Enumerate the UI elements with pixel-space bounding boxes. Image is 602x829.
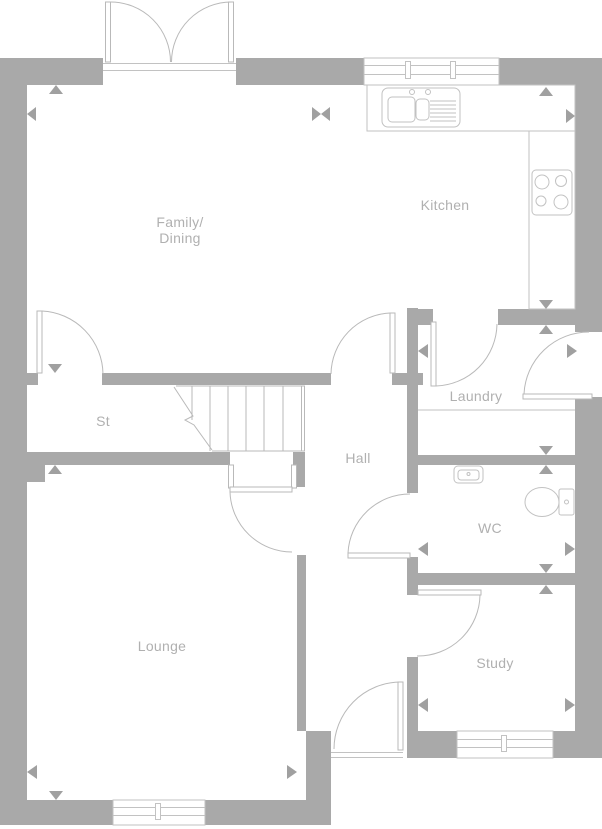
- wall-segment: [27, 452, 230, 465]
- wall-segment: [27, 373, 38, 385]
- wall-segment: [498, 309, 575, 325]
- junction-marker-icon: [418, 698, 428, 712]
- floorplan-linework: [0, 0, 602, 829]
- wall-segment: [407, 465, 418, 493]
- study-door-icon: [417, 590, 481, 656]
- room-label-wc: WC: [478, 520, 502, 536]
- wall-segment: [553, 731, 575, 758]
- junction-marker-icon: [321, 107, 330, 121]
- study-window-icon: [457, 731, 553, 758]
- wall-segment: [407, 657, 418, 731]
- wall-segment: [407, 455, 575, 465]
- wall-segment: [102, 373, 331, 385]
- floor-plan: Family/ Dining Kitchen St Hall Laundry W…: [0, 0, 602, 829]
- room-label-line: Family/: [156, 214, 203, 230]
- junction-marker-icon: [27, 765, 37, 779]
- junction-marker-icon: [27, 107, 36, 121]
- wall-segment: [27, 465, 45, 482]
- junction-marker-icon: [539, 325, 553, 334]
- sink-icon: [382, 88, 460, 127]
- wall-segment: [392, 373, 423, 385]
- junction-marker-icon: [565, 542, 575, 556]
- room-label-study: Study: [476, 655, 513, 671]
- lounge-door-icon: [229, 465, 297, 552]
- wall-segment: [293, 452, 305, 465]
- junction-marker-icon: [48, 364, 62, 373]
- junction-marker-icon: [48, 465, 62, 474]
- room-label-st: St: [96, 413, 110, 429]
- wc-door-icon: [348, 494, 410, 558]
- junction-marker-icon: [312, 107, 321, 121]
- hob-icon: [530, 166, 575, 220]
- wall-segment: [0, 58, 27, 825]
- toilet-icon: [525, 488, 574, 517]
- lounge-window-icon: [113, 800, 205, 825]
- wall-segment: [297, 555, 306, 731]
- wall-segment: [236, 58, 364, 85]
- door-openings: [38, 58, 602, 758]
- wall-segment: [575, 397, 602, 758]
- room-label-laundry: Laundry: [450, 388, 503, 404]
- wall-segment: [575, 58, 602, 332]
- wall-segment: [306, 731, 331, 800]
- room-label-lounge: Lounge: [138, 638, 187, 654]
- junction-marker-icon: [418, 542, 428, 556]
- junction-marker-icon: [539, 300, 553, 309]
- basin-icon: [454, 466, 483, 483]
- wall-segment: [407, 731, 457, 758]
- junction-marker-icon: [539, 87, 553, 96]
- junction-marker-icon: [539, 564, 553, 573]
- wall-segment: [205, 800, 331, 825]
- room-label-hall: Hall: [345, 450, 370, 466]
- junction-marker-icon: [539, 446, 553, 455]
- junction-marker-icon: [565, 698, 575, 712]
- kitchen-window-icon: [364, 58, 499, 85]
- junction-marker-icon: [49, 85, 63, 94]
- wall-segment: [407, 573, 575, 585]
- room-label-line: Dining: [156, 230, 203, 246]
- junction-marker-icon: [539, 585, 553, 594]
- laundry-door-icon: [431, 322, 497, 386]
- wall-segment: [0, 800, 113, 825]
- junction-marker-icon: [566, 109, 575, 123]
- junction-marker-icon: [49, 791, 63, 800]
- junction-marker-icon: [418, 344, 428, 358]
- wall-segment: [407, 585, 418, 595]
- junction-marker-icon: [539, 465, 553, 474]
- wall-segment: [407, 308, 418, 465]
- junction-marker-icon: [287, 765, 297, 779]
- room-label-kitchen: Kitchen: [421, 197, 470, 213]
- family-hall-door-icon: [331, 313, 395, 374]
- wall-segment: [407, 309, 433, 325]
- stairs-icon: [174, 386, 305, 451]
- room-label-family-dining: Family/ Dining: [156, 214, 203, 246]
- st-door-icon: [37, 311, 103, 374]
